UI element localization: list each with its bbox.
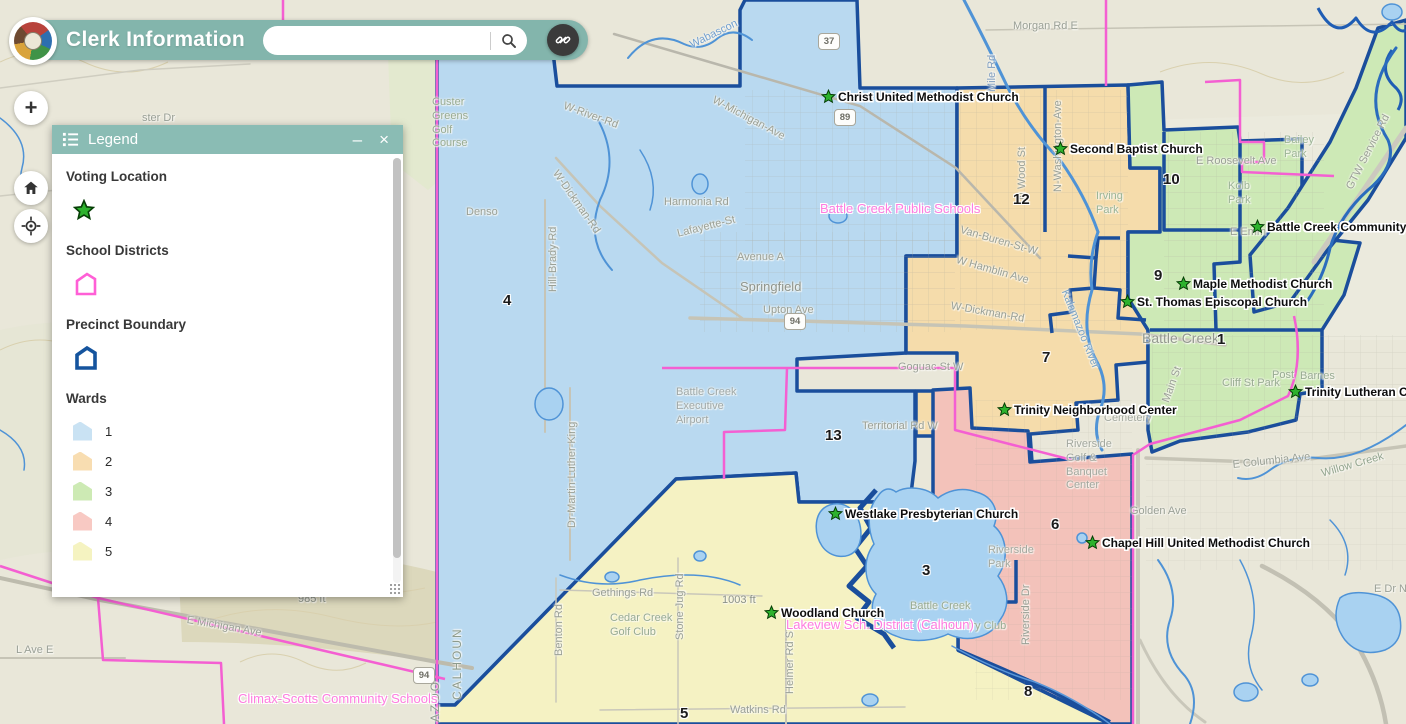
voting-location-label[interactable]: Trinity Neighborhood Center <box>997 402 1177 417</box>
map-base-label: Battle Creek <box>910 600 971 614</box>
map-base-label: Mile Rd <box>986 55 1000 92</box>
legend-title: Legend <box>88 131 340 148</box>
voting-location-label[interactable]: Trinity Lutheran Ch <box>1288 384 1406 399</box>
ward-number-label: 13 <box>825 427 842 444</box>
legend-body: Voting Location School Districts Precinc… <box>52 154 403 597</box>
map-base-label: Riverside Park <box>988 544 1034 572</box>
ward-number-label: 12 <box>1013 191 1030 208</box>
legend-panel: Legend – × Voting Location School Distri… <box>52 125 403 597</box>
map-base-label: Springfield <box>740 279 801 295</box>
ward-swatch <box>73 482 92 501</box>
legend-close-button[interactable]: × <box>375 131 393 148</box>
search-box <box>263 26 527 55</box>
map-base-label: Custer Greens Golf Course <box>432 96 468 151</box>
route-shield: 94 <box>784 313 806 330</box>
voting-location-star-icon <box>1250 219 1265 234</box>
legend-resize-handle[interactable] <box>390 584 401 595</box>
map-base-label: Bailey Park <box>1284 134 1314 162</box>
ward-swatch <box>73 542 92 561</box>
map-base-label: Riverside Golf & Banquet Center <box>1066 438 1112 493</box>
legend-ward-row: 5 <box>73 536 389 566</box>
voting-location-star-icon <box>821 89 836 104</box>
map-base-label: Hill-Brady-Rd <box>547 227 561 292</box>
map-base-label: Gethings Rd <box>592 587 653 601</box>
voting-location-label[interactable]: Battle Creek Community <box>1250 219 1406 234</box>
voting-location-star-icon <box>1288 384 1303 399</box>
legend-list-icon <box>62 131 79 148</box>
map-base-label: Barnes <box>1300 370 1335 384</box>
legend-header[interactable]: Legend – × <box>52 125 403 154</box>
map-base-label: E Roosevelt Ave <box>1196 155 1277 169</box>
voting-location-star-icon <box>1120 294 1135 309</box>
route-shield: 94 <box>413 667 435 684</box>
voting-location-legend-star-icon <box>73 199 95 221</box>
map-base-label: Post <box>1272 369 1294 383</box>
route-shield: 89 <box>834 109 856 126</box>
map-base-label: Goguac St W <box>898 361 963 375</box>
map-base-label: Irving Park <box>1096 190 1123 218</box>
app-title: Clerk Information <box>66 28 245 52</box>
ward-label: 4 <box>105 514 112 529</box>
legend-heading-school-districts: School Districts <box>66 243 389 258</box>
legend-ward-row: 3 <box>73 476 389 506</box>
home-button[interactable] <box>14 171 48 205</box>
school-district-legend-symbol <box>73 271 99 297</box>
ward-swatch <box>73 422 92 441</box>
ward-number-label: 4 <box>503 292 511 309</box>
legend-heading-voting-location: Voting Location <box>66 169 389 184</box>
precinct-boundary-legend-symbol <box>73 345 99 371</box>
ward-number-label: 5 <box>680 705 688 722</box>
map-base-label: Benton Rd <box>553 604 567 656</box>
ward-swatch <box>73 512 92 531</box>
legend-ward-list: 1 2 3 4 5 <box>66 416 389 566</box>
map-base-label: Watkins Rd <box>730 704 786 718</box>
voting-location-label[interactable]: Maple Methodist Church <box>1176 276 1332 291</box>
voting-location-label[interactable]: St. Thomas Episcopal Church <box>1120 294 1307 309</box>
voting-location-star-icon <box>1085 535 1100 550</box>
map-base-label: Battle Creek Executive Airport <box>676 386 737 427</box>
voting-location-label[interactable]: Woodland Church <box>764 605 884 620</box>
ward-label: 2 <box>105 454 112 469</box>
map-base-label: Helmer Rd S <box>784 631 798 694</box>
map-base-label: L Ave E <box>16 644 53 658</box>
map-base-label: Kolb Park <box>1228 180 1251 208</box>
voting-location-label[interactable]: Christ United Methodist Church <box>821 89 1019 104</box>
share-link-button[interactable] <box>547 24 579 56</box>
legend-ward-row: 2 <box>73 446 389 476</box>
map-base-label: Harmonia Rd <box>664 196 729 210</box>
map-base-label: Territorial Rd W <box>862 420 938 434</box>
legend-heading-precinct-boundary: Precinct Boundary <box>66 317 389 332</box>
ward-number-label: 8 <box>1024 683 1032 700</box>
home-icon <box>22 179 40 197</box>
map-base-label: Morgan Rd E <box>1013 20 1078 34</box>
ward-swatch <box>73 452 92 471</box>
school-district-label: Battle Creek Public Schools <box>820 201 980 216</box>
school-district-label: Climax-Scotts Community Schools <box>238 691 437 706</box>
map-base-label: E Dr N <box>1374 583 1406 597</box>
ward-number-label: 6 <box>1051 516 1059 533</box>
map-base-label: CALHOUN <box>450 627 465 700</box>
map-base-label: Stone Jug Rd <box>674 573 688 640</box>
map-application: ster DrCuster Greens Golf CourseDensoW-D… <box>0 0 1406 724</box>
voting-location-label[interactable]: Westlake Presbyterian Church <box>828 506 1018 521</box>
voting-location-star-icon <box>1176 276 1191 291</box>
search-icon <box>500 32 518 50</box>
legend-ward-row: 4 <box>73 506 389 536</box>
city-seal-icon <box>14 22 52 60</box>
ward-label: 3 <box>105 484 112 499</box>
zoom-in-button[interactable]: + <box>14 91 48 125</box>
route-shield: 37 <box>818 33 840 50</box>
link-icon <box>554 31 572 49</box>
legend-heading-wards: Wards <box>66 391 389 406</box>
voting-location-label[interactable]: Second Baptist Church <box>1053 141 1203 156</box>
voting-location-star-icon <box>1053 141 1068 156</box>
ward-number-label: 7 <box>1042 349 1050 366</box>
map-base-label: Dr-Martin-Luther-King <box>566 422 580 528</box>
voting-location-label[interactable]: Chapel Hill United Methodist Church <box>1085 535 1310 550</box>
map-base-label: Golden Ave <box>1130 505 1187 519</box>
legend-ward-row: 1 <box>73 416 389 446</box>
ward-label: 1 <box>105 424 112 439</box>
map-base-label: 1003 ft <box>722 594 756 608</box>
voting-location-star-icon <box>997 402 1012 417</box>
ward-number-label: 3 <box>922 562 930 579</box>
voting-location-star-icon <box>828 506 843 521</box>
ward-number-label: 9 <box>1154 267 1162 284</box>
ward-number-label: 10 <box>1163 171 1180 188</box>
search-button[interactable] <box>491 26 527 55</box>
map-base-label: Battle Creek <box>1142 330 1219 348</box>
map-base-label: ster Dr <box>142 112 175 126</box>
voting-location-star-icon <box>764 605 779 620</box>
search-input[interactable] <box>263 26 490 55</box>
plus-icon: + <box>25 97 38 119</box>
map-base-label: Riverside Dr <box>1020 584 1034 645</box>
legend-minimize-button[interactable]: – <box>349 131 366 148</box>
map-base-label: Avenue A <box>737 251 784 265</box>
map-base-label: Cedar Creek Golf Club <box>610 612 672 640</box>
legend-scrollbar[interactable] <box>393 158 401 583</box>
ward-number-label: 1 <box>1217 331 1225 348</box>
city-seal-logo <box>9 17 57 65</box>
map-base-label: Denso <box>466 206 498 220</box>
locate-button[interactable] <box>14 209 48 243</box>
locate-crosshair-icon <box>21 216 41 236</box>
ward-label: 5 <box>105 544 112 559</box>
